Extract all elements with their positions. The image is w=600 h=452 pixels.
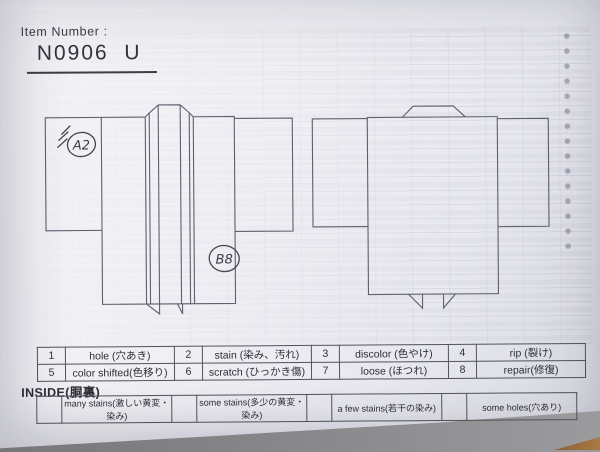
hatch-marks [57,126,70,148]
defect-label-cell: color shifted(色移り) [65,363,174,381]
table-row: many stains(激しい黄変・染み) some stains(多少の黄変・… [37,393,577,424]
table-row: 5 color shifted(色移り) 6 scratch (ひっかき傷) 7… [37,361,585,382]
inside-option-cell: some stains(多少の黄変・染み) [197,394,307,422]
defect-num-cell: 6 [174,363,202,380]
defect-num-cell: 7 [311,362,339,379]
defect-num-cell: 1 [37,347,65,364]
back-right-sleeve [497,118,549,226]
annotation-a2: A2 [57,125,97,158]
defect-num-cell: 5 [37,364,65,381]
inside-checkbox-cell [307,394,332,421]
front-kimono-diagram [45,104,293,315]
defect-legend-table: 1 hole (穴あき) 2 stain (染み、汚れ) 3 discolor … [37,343,586,382]
annotation-b8-text: B8 [216,252,233,267]
document-content: Item Number : N0906 U A2 B8 [0,0,600,452]
inside-option-cell: many stains(激しい黄変・染み) [62,395,172,423]
defect-num-cell: 3 [311,345,339,362]
front-body-outline [101,116,235,304]
defect-label-cell: stain (染み、汚れ) [202,345,311,363]
front-right-sleeve [234,118,293,231]
back-left-sleeve [312,119,368,227]
inside-checkbox-cell [442,393,467,420]
defect-num-cell: 2 [174,346,202,363]
back-kimono-diagram [312,105,549,309]
defect-label-cell: loose (ほつれ) [339,361,448,379]
inside-lining-table: many stains(激しい黄変・染み) some stains(多少の黄変・… [36,392,577,424]
defect-label-cell: rip (裂け) [476,344,585,362]
defect-label-cell: hole (穴あき) [65,346,174,364]
inside-checkbox-cell [172,395,197,422]
back-collar [402,106,465,117]
defect-label-cell: discolor (色やけ) [339,344,448,362]
defect-num-cell: 8 [448,361,476,378]
front-collar-band [145,105,194,304]
inside-checkbox-cell [37,396,62,423]
back-body-outline [367,117,498,295]
defect-num-cell: 4 [448,344,476,361]
annotation-a2-text: A2 [72,138,90,153]
inside-option-cell: some holes(穴あり) [467,393,577,421]
back-collar-tips [408,294,455,308]
front-collar-tips [147,304,183,314]
defect-label-cell: scratch (ひっかき傷) [202,362,311,380]
defect-label-cell: repair(修復) [476,361,585,379]
inside-option-cell: a few stains(若干の染み) [332,394,442,422]
